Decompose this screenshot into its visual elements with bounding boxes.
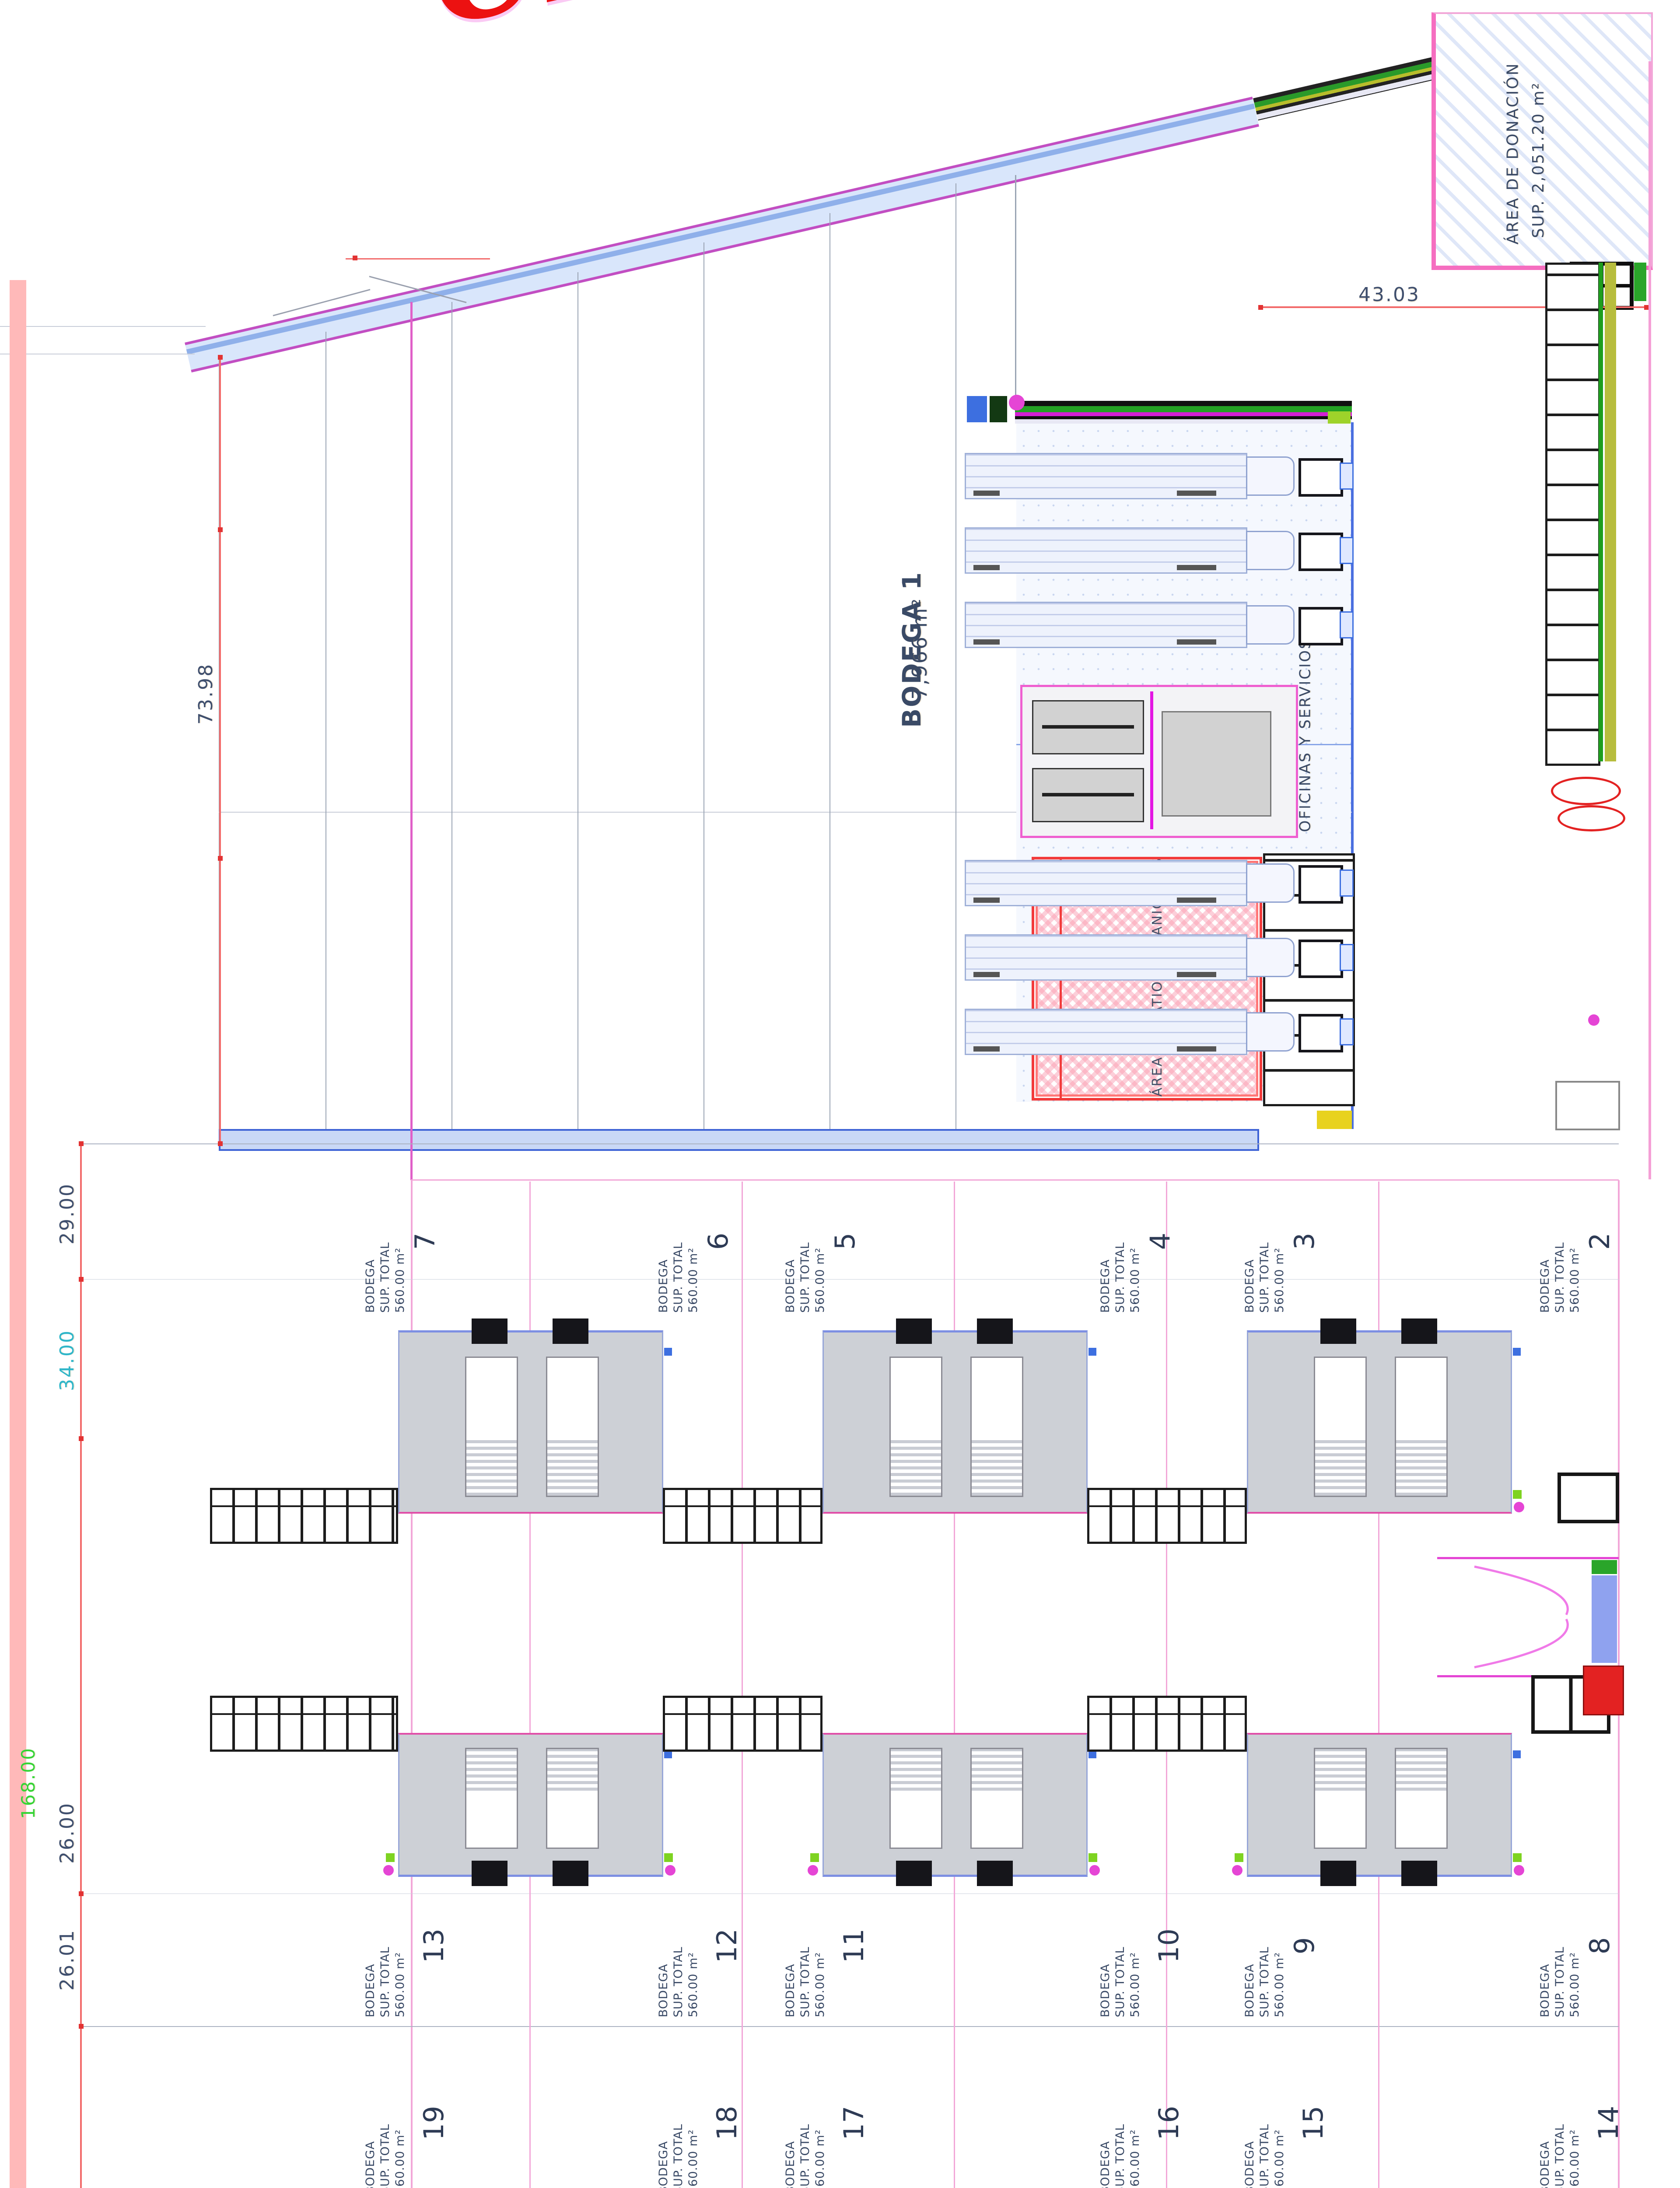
loading-ramp bbox=[1314, 1357, 1367, 1497]
ramp-hatch bbox=[466, 1438, 517, 1496]
unit-sub: SUP. TOTAL bbox=[1113, 2055, 1128, 2188]
dock-door bbox=[1340, 611, 1354, 638]
loading-ramp bbox=[1314, 1748, 1367, 1849]
column-cap bbox=[1320, 1318, 1356, 1344]
unit-name: BODEGA bbox=[363, 1877, 378, 2017]
tree-icon bbox=[1232, 1865, 1242, 1876]
tree-icon bbox=[808, 1865, 818, 1876]
column-cap bbox=[472, 1861, 507, 1886]
unit-sub: SUP. TOTAL bbox=[1553, 1877, 1568, 2017]
unit-number: 14 bbox=[1592, 2106, 1624, 2140]
unit-name: BODEGA bbox=[1538, 2055, 1553, 2188]
ramp-hatch bbox=[547, 1438, 598, 1496]
unit-name: BODEGA bbox=[363, 2055, 378, 2188]
loading-ramp bbox=[1395, 1357, 1448, 1497]
tree-icon bbox=[665, 1865, 675, 1876]
parking-strip bbox=[1087, 1488, 1247, 1544]
loading-ramp bbox=[970, 1748, 1023, 1849]
parking-strip-bar bbox=[1089, 1713, 1245, 1715]
loading-ramp bbox=[465, 1748, 518, 1849]
unit-number: 15 bbox=[1297, 2106, 1329, 2140]
unit-number: 16 bbox=[1153, 2106, 1185, 2140]
parking-strip bbox=[210, 1488, 398, 1544]
column-cap bbox=[1320, 1861, 1356, 1886]
loading-ramp bbox=[970, 1357, 1023, 1497]
hydrant-icon bbox=[664, 1348, 672, 1356]
unit-area: 560.00 m² bbox=[1568, 2055, 1582, 2188]
dock-door bbox=[1340, 463, 1354, 490]
dock-leveler bbox=[1298, 458, 1343, 497]
unit-sub: SUP. TOTAL bbox=[798, 1173, 813, 1313]
shrub-icon bbox=[810, 1853, 819, 1862]
unit-sub: SUP. TOTAL bbox=[798, 1877, 813, 2017]
unit-number: 19 bbox=[418, 2106, 450, 2140]
unit-area: 560.00 m² bbox=[813, 2055, 828, 2188]
unit-area: 560.00 m² bbox=[1568, 1173, 1582, 1313]
parking-strip-bar bbox=[1089, 1505, 1245, 1507]
loading-ramp bbox=[889, 1748, 942, 1849]
hydrant-icon bbox=[1088, 1348, 1096, 1356]
unit-module bbox=[1247, 1330, 1512, 1514]
dock-door bbox=[1340, 944, 1354, 971]
unit-module bbox=[398, 1330, 663, 1514]
truck-cab bbox=[1246, 531, 1295, 570]
ramp-hatch bbox=[547, 1749, 598, 1791]
shrub-icon bbox=[1513, 1490, 1522, 1499]
unit-area: 560.00 m² bbox=[686, 1173, 701, 1313]
shrub-icon bbox=[1513, 1853, 1522, 1862]
unit-area: 560.00 m² bbox=[686, 1877, 701, 2017]
loading-ramp bbox=[546, 1357, 599, 1497]
unit-sub: SUP. TOTAL bbox=[378, 1173, 393, 1313]
tree-icon bbox=[1089, 1865, 1100, 1876]
truck-wheel bbox=[973, 639, 1000, 645]
column-cap bbox=[977, 1318, 1013, 1344]
hydrant-icon bbox=[1513, 1750, 1521, 1758]
ramp-hatch bbox=[1396, 1749, 1446, 1791]
truck-wheel bbox=[973, 565, 1000, 570]
loading-ramp bbox=[546, 1748, 599, 1849]
unit-area: 560.00 m² bbox=[813, 1877, 828, 2017]
unit-sub: SUP. TOTAL bbox=[378, 2055, 393, 2188]
unit-module bbox=[1247, 1733, 1512, 1877]
unit-number: 13 bbox=[418, 1929, 450, 1963]
unit-module bbox=[822, 1330, 1088, 1514]
ramp-hatch bbox=[891, 1438, 941, 1496]
generated-layer: BODEGA SUP. TOTAL 560.00 m² 7 BODEGA SUP… bbox=[0, 0, 1680, 2188]
unit-sub: SUP. TOTAL bbox=[1257, 2055, 1272, 2188]
ramp-hatch bbox=[972, 1438, 1022, 1496]
parking-strip-bar bbox=[665, 1713, 820, 1715]
ramp-hatch bbox=[1315, 1749, 1365, 1791]
warehouse-column-gridline bbox=[703, 242, 704, 1129]
column-cap bbox=[896, 1318, 932, 1344]
truck-wheel bbox=[973, 972, 1000, 977]
unit-area: 560.00 m² bbox=[1128, 2055, 1143, 2188]
unit-name: BODEGA bbox=[363, 1173, 378, 1313]
unit-number: 8 bbox=[1584, 1937, 1616, 1954]
unit-name: BODEGA bbox=[783, 2055, 798, 2188]
unit-area: 560.00 m² bbox=[1272, 2055, 1287, 2188]
ramp-hatch bbox=[1396, 1438, 1446, 1496]
truck-wheel bbox=[973, 898, 1000, 903]
unit-name: BODEGA bbox=[1242, 1173, 1257, 1313]
unit-name: BODEGA bbox=[1098, 2055, 1113, 2188]
unit-area: 560.00 m² bbox=[1272, 1877, 1287, 2017]
unit-sub: SUP. TOTAL bbox=[1257, 1877, 1272, 2017]
column-cap bbox=[896, 1861, 932, 1886]
warehouse-column-gridline bbox=[325, 332, 326, 1129]
tree-icon bbox=[1514, 1502, 1524, 1512]
dock-leveler bbox=[1298, 940, 1343, 978]
unit-name: BODEGA bbox=[1538, 1877, 1553, 2017]
unit-sub: SUP. TOTAL bbox=[671, 1173, 686, 1313]
unit-name: BODEGA bbox=[783, 1173, 798, 1313]
unit-name: BODEGA bbox=[1538, 1173, 1553, 1313]
unit-number: 12 bbox=[711, 1929, 743, 1963]
shrub-icon bbox=[386, 1853, 395, 1862]
parking-strip bbox=[1087, 1696, 1247, 1752]
truck-cab bbox=[1246, 863, 1295, 903]
unit-sub: SUP. TOTAL bbox=[671, 2055, 686, 2188]
shrub-icon bbox=[1088, 1853, 1097, 1862]
ramp-hatch bbox=[891, 1749, 941, 1791]
parking-strip bbox=[663, 1696, 822, 1752]
unit-number: 4 bbox=[1144, 1233, 1176, 1250]
unit-area: 560.00 m² bbox=[1128, 1877, 1143, 2017]
warehouse-column-gridline bbox=[577, 272, 578, 1129]
parking-strip-bar bbox=[665, 1505, 820, 1507]
truck-wheel bbox=[973, 491, 1000, 496]
truck-cab bbox=[1246, 456, 1295, 496]
parking-strip-bar bbox=[212, 1505, 396, 1507]
column-cap bbox=[553, 1861, 588, 1886]
truck-wheel bbox=[1177, 639, 1216, 645]
unit-name: BODEGA bbox=[1098, 1173, 1113, 1313]
unit-sub: SUP. TOTAL bbox=[1257, 1173, 1272, 1313]
dock-door bbox=[1340, 870, 1354, 897]
truck-wheel bbox=[973, 1046, 1000, 1052]
unit-number: 9 bbox=[1288, 1937, 1320, 1954]
column-cap bbox=[1401, 1861, 1437, 1886]
unit-area: 560.00 m² bbox=[393, 1173, 408, 1313]
warehouse-column-gridline bbox=[451, 302, 452, 1129]
parking-strip bbox=[663, 1488, 822, 1544]
column-cap bbox=[977, 1861, 1013, 1886]
truck-cab bbox=[1246, 605, 1295, 645]
dock-door bbox=[1340, 537, 1354, 564]
column-cap bbox=[472, 1318, 507, 1344]
truck-wheel bbox=[1177, 491, 1216, 496]
dock-leveler bbox=[1298, 1014, 1343, 1052]
unit-sub: SUP. TOTAL bbox=[1113, 1877, 1128, 2017]
parking-strip-bar bbox=[212, 1713, 396, 1715]
unit-area: 560.00 m² bbox=[1128, 1173, 1143, 1313]
unit-area: 560.00 m² bbox=[686, 2055, 701, 2188]
unit-name: BODEGA bbox=[783, 1877, 798, 2017]
truck-wheel bbox=[1177, 972, 1216, 977]
unit-number: 6 bbox=[702, 1233, 734, 1250]
lot-line bbox=[1166, 1182, 1167, 2188]
truck-cab bbox=[1246, 1012, 1295, 1052]
unit-number: 10 bbox=[1153, 1929, 1185, 1963]
dock-leveler bbox=[1298, 533, 1343, 571]
dock-door bbox=[1340, 1018, 1354, 1045]
unit-number: 2 bbox=[1584, 1233, 1616, 1250]
warehouse-column-gridline bbox=[829, 213, 830, 1129]
ramp-hatch bbox=[1315, 1438, 1365, 1496]
lot-line bbox=[742, 1182, 743, 2188]
unit-area: 560.00 m² bbox=[813, 1173, 828, 1313]
unit-number: 7 bbox=[409, 1233, 441, 1250]
parking-strip bbox=[210, 1696, 398, 1752]
truck-wheel bbox=[1177, 898, 1216, 903]
shrub-icon bbox=[1235, 1853, 1243, 1862]
loading-ramp bbox=[1395, 1748, 1448, 1849]
unit-number: 3 bbox=[1288, 1233, 1320, 1250]
unit-area: 560.00 m² bbox=[1568, 1877, 1582, 2017]
unit-area: 560.00 m² bbox=[1272, 1173, 1287, 1313]
tree-icon bbox=[1514, 1865, 1524, 1876]
column-cap bbox=[553, 1318, 588, 1344]
dock-leveler bbox=[1298, 865, 1343, 904]
floor-plan: CARRETERA ÁREA DE DONACIÓN SUP. 2,051.20… bbox=[0, 0, 1680, 2188]
unit-sub: SUP. TOTAL bbox=[671, 1877, 686, 2017]
unit-name: BODEGA bbox=[1242, 2055, 1257, 2188]
unit-name: BODEGA bbox=[656, 1877, 671, 2017]
truck-wheel bbox=[1177, 1046, 1216, 1052]
unit-number: 18 bbox=[711, 2106, 743, 2140]
unit-number: 11 bbox=[838, 1929, 870, 1963]
tree-icon bbox=[383, 1865, 394, 1876]
unit-name: BODEGA bbox=[1242, 1877, 1257, 2017]
ramp-hatch bbox=[466, 1749, 517, 1791]
loading-ramp bbox=[889, 1357, 942, 1497]
column-cap bbox=[1401, 1318, 1437, 1344]
unit-name: BODEGA bbox=[1098, 1877, 1113, 2017]
unit-sub: SUP. TOTAL bbox=[1113, 1173, 1128, 1313]
unit-name: BODEGA bbox=[656, 1173, 671, 1313]
dock-leveler bbox=[1298, 607, 1343, 645]
warehouse-column-gridline bbox=[955, 183, 956, 1129]
unit-area: 560.00 m² bbox=[393, 2055, 408, 2188]
unit-area: 560.00 m² bbox=[393, 1877, 408, 2017]
truck-wheel bbox=[1177, 565, 1216, 570]
unit-name: BODEGA bbox=[656, 2055, 671, 2188]
unit-sub: SUP. TOTAL bbox=[798, 2055, 813, 2188]
unit-module bbox=[398, 1733, 663, 1877]
unit-sub: SUP. TOTAL bbox=[1553, 2055, 1568, 2188]
loading-ramp bbox=[465, 1357, 518, 1497]
unit-sub: SUP. TOTAL bbox=[1553, 1173, 1568, 1313]
unit-module bbox=[822, 1733, 1088, 1877]
unit-number: 5 bbox=[829, 1233, 861, 1250]
ramp-hatch bbox=[972, 1749, 1022, 1791]
hydrant-icon bbox=[1513, 1348, 1521, 1356]
unit-number: 17 bbox=[838, 2106, 870, 2140]
truck-cab bbox=[1246, 938, 1295, 977]
shrub-icon bbox=[664, 1853, 673, 1862]
unit-sub: SUP. TOTAL bbox=[378, 1877, 393, 2017]
